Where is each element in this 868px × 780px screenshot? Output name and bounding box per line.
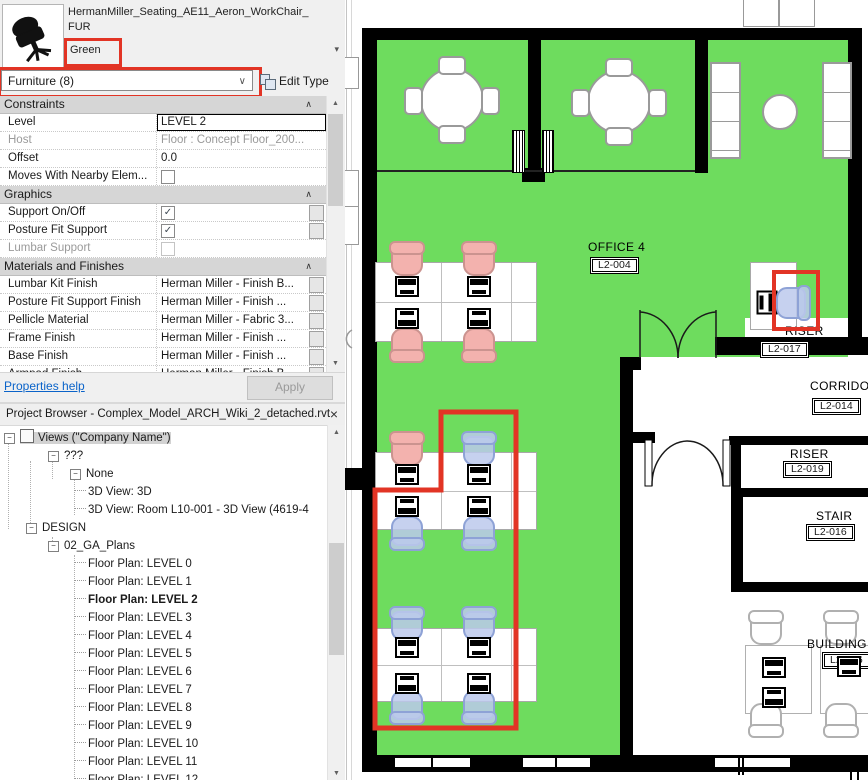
property-row-frame-finish: Frame Finish Herman Miller - Finish ...: [0, 330, 326, 348]
browse-button[interactable]: [309, 349, 324, 365]
tree-item-level-4[interactable]: Floor Plan: LEVEL 4: [0, 627, 328, 645]
edit-type-button[interactable]: Edit Type: [260, 70, 329, 92]
browse-button[interactable]: [309, 223, 324, 239]
collapse-icon[interactable]: ∧: [305, 96, 312, 113]
checkbox-checked[interactable]: ✓: [161, 224, 175, 238]
views-tree: −Views ("Company Name") −??? −None 3D Vi…: [0, 425, 328, 780]
tree-item-unknown-group[interactable]: −???: [0, 447, 328, 465]
level-value[interactable]: LEVEL 2: [157, 114, 326, 131]
tree-item-level-10[interactable]: Floor Plan: LEVEL 10: [0, 735, 328, 753]
browse-button[interactable]: [309, 205, 324, 221]
browse-button[interactable]: [309, 331, 324, 347]
browser-scrollbar[interactable]: ▲ ▼: [327, 425, 345, 780]
type-preview-image: [2, 4, 64, 68]
family-name-line1: HermanMiller_Seating_AE11_Aeron_WorkChai…: [68, 6, 336, 18]
scrollbar-thumb[interactable]: [329, 543, 344, 655]
collapse-box-icon[interactable]: −: [4, 433, 15, 444]
property-row-base-finish: Base Finish Herman Miller - Finish ...: [0, 348, 326, 366]
collapse-box-icon[interactable]: −: [48, 451, 59, 462]
tree-item-views-root[interactable]: −Views ("Company Name"): [0, 429, 328, 447]
scroll-up-icon[interactable]: ▲: [327, 96, 344, 112]
tree-item-level-3[interactable]: Floor Plan: LEVEL 3: [0, 609, 328, 627]
property-row-lumbar-kit-finish: Lumbar Kit Finish Herman Miller - Finish…: [0, 276, 326, 294]
collapse-icon[interactable]: ∧: [305, 186, 312, 203]
checkbox-checked[interactable]: ✓: [161, 206, 175, 220]
properties-footer: Properties help Apply: [0, 372, 345, 403]
double-door-lower[interactable]: [645, 440, 730, 486]
tree-item-3d-view-room[interactable]: 3D View: Room L10-001 - 3D View (4619-4: [0, 501, 328, 519]
tree-item-design[interactable]: −DESIGN: [0, 519, 328, 537]
selection-boundary: [375, 412, 516, 728]
type-selector-dropdown-icon[interactable]: ▾: [334, 44, 339, 55]
offset-value[interactable]: 0.0: [157, 150, 326, 167]
elevation-arc: [346, 330, 352, 348]
browse-button[interactable]: [309, 295, 324, 311]
tree-item-level-1[interactable]: Floor Plan: LEVEL 1: [0, 573, 328, 591]
tree-item-3d-view[interactable]: 3D View: 3D: [0, 483, 328, 501]
properties-scrollbar[interactable]: ▲ ▼: [326, 96, 344, 372]
property-row-support-onoff: Support On/Off ✓: [0, 204, 326, 222]
tree-item-level-0[interactable]: Floor Plan: LEVEL 0: [0, 555, 328, 573]
collapse-box-icon[interactable]: −: [70, 469, 81, 480]
tree-item-none-group[interactable]: −None: [0, 465, 328, 483]
tree-item-level-6[interactable]: Floor Plan: LEVEL 6: [0, 663, 328, 681]
tree-item-level-8[interactable]: Floor Plan: LEVEL 8: [0, 699, 328, 717]
tree-item-level-11[interactable]: Floor Plan: LEVEL 11: [0, 753, 328, 771]
properties-help-link[interactable]: Properties help: [4, 379, 85, 393]
collapse-box-icon[interactable]: −: [26, 523, 37, 534]
category-highlight-box: [0, 67, 262, 98]
project-browser-titlebar[interactable]: Project Browser - Complex_Model_ARCH_Wik…: [0, 404, 345, 426]
plan-overlay: [345, 0, 868, 780]
chair-highlight-box: [772, 270, 820, 331]
section-materials[interactable]: Materials and Finishes∧: [0, 258, 326, 276]
close-icon[interactable]: ×: [330, 404, 338, 425]
family-name-line2: FUR: [68, 21, 336, 33]
properties-palette: HermanMiller_Seating_AE11_Aeron_WorkChai…: [0, 0, 345, 780]
scroll-up-icon[interactable]: ▲: [328, 425, 345, 441]
tree-item-ga-plans[interactable]: −02_GA_Plans: [0, 537, 328, 555]
scroll-down-icon[interactable]: ▼: [327, 356, 344, 372]
host-value: Floor : Concept Floor_200...: [157, 132, 326, 149]
collapse-box-icon[interactable]: −: [48, 541, 59, 552]
scroll-down-icon[interactable]: ▼: [328, 766, 345, 780]
section-constraints[interactable]: Constraints∧: [0, 96, 326, 114]
tree-item-level-7[interactable]: Floor Plan: LEVEL 7: [0, 681, 328, 699]
browse-button[interactable]: [309, 277, 324, 293]
checkbox-disabled: [161, 242, 175, 256]
property-row-level: Level LEVEL 2: [0, 114, 326, 132]
tree-item-level-2-active[interactable]: Floor Plan: LEVEL 2: [0, 591, 328, 609]
property-row-posture-finish: Posture Fit Support Finish Herman Miller…: [0, 294, 326, 312]
property-row-pellicle-material: Pellicle Material Herman Miller - Fabric…: [0, 312, 326, 330]
browse-button[interactable]: [309, 313, 324, 329]
edit-type-icon: [260, 74, 275, 89]
property-row-host: Host Floor : Concept Floor_200...: [0, 132, 326, 150]
property-row-moves-with-nearby: Moves With Nearby Elem...: [0, 168, 326, 186]
checkbox-unchecked[interactable]: [161, 170, 175, 184]
views-icon: [20, 429, 34, 443]
double-door-upper[interactable]: [640, 310, 716, 358]
floor-plan-canvas[interactable]: OFFICE 4 L2-004 RISER L2-017 CORRIDOR L2…: [345, 0, 868, 780]
property-row-posture-fit: Posture Fit Support ✓: [0, 222, 326, 240]
project-browser: Project Browser - Complex_Model_ARCH_Wik…: [0, 402, 345, 780]
section-graphics[interactable]: Graphics∧: [0, 186, 326, 204]
scrollbar-thumb[interactable]: [328, 114, 343, 206]
tree-item-level-9[interactable]: Floor Plan: LEVEL 9: [0, 717, 328, 735]
revit-window: HermanMiller_Seating_AE11_Aeron_WorkChai…: [0, 0, 868, 780]
property-row-offset: Offset 0.0: [0, 150, 326, 168]
apply-button[interactable]: Apply: [247, 376, 333, 400]
chair-thumbnail-icon: [3, 5, 61, 65]
type-name-highlight-box: [64, 38, 122, 67]
tree-item-level-12[interactable]: Floor Plan: LEVEL 12: [0, 771, 328, 780]
property-row-lumbar-support: Lumbar Support: [0, 240, 326, 258]
tree-item-level-5[interactable]: Floor Plan: LEVEL 5: [0, 645, 328, 663]
collapse-icon[interactable]: ∧: [305, 258, 312, 275]
property-grid: Constraints∧ Level LEVEL 2 Host Floor : …: [0, 96, 326, 372]
